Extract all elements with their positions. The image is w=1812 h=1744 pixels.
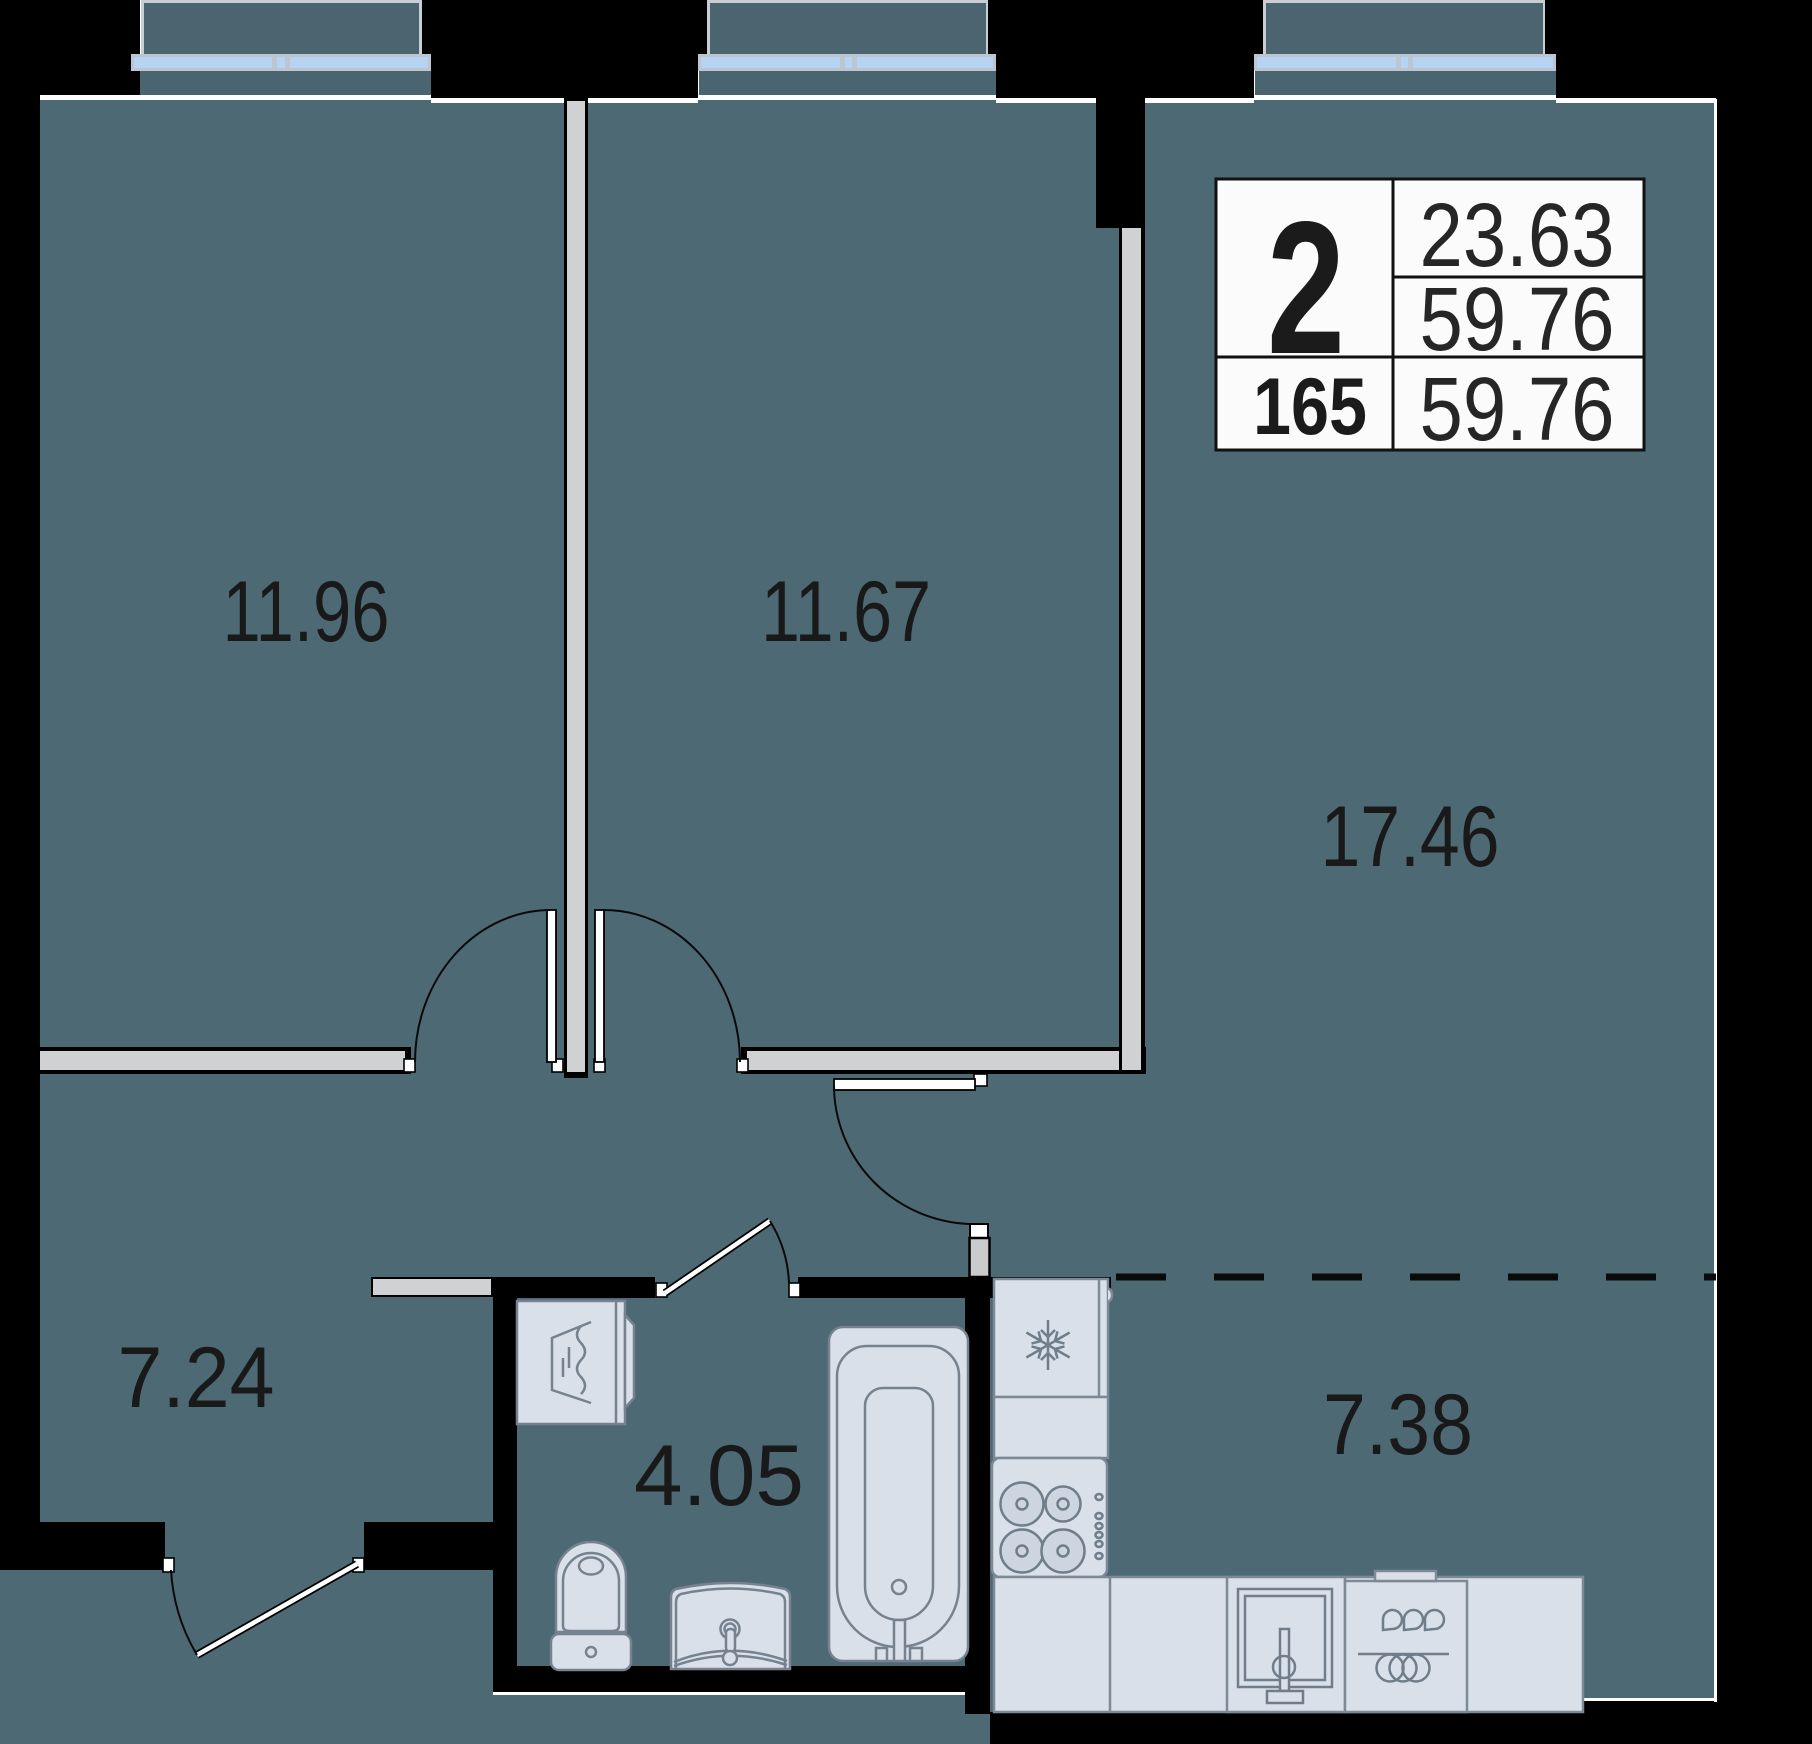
- svg-text:11.96: 11.96: [223, 564, 390, 660]
- svg-text:7.24: 7.24: [118, 1330, 275, 1426]
- svg-text:165: 165: [1253, 362, 1367, 452]
- svg-text:4.05: 4.05: [634, 1428, 804, 1524]
- svg-text:59.76: 59.76: [1420, 270, 1615, 370]
- svg-text:59.76: 59.76: [1420, 360, 1615, 460]
- svg-text:7.38: 7.38: [1323, 1377, 1473, 1473]
- svg-text:17.46: 17.46: [1321, 789, 1500, 885]
- svg-text:11.67: 11.67: [761, 564, 931, 660]
